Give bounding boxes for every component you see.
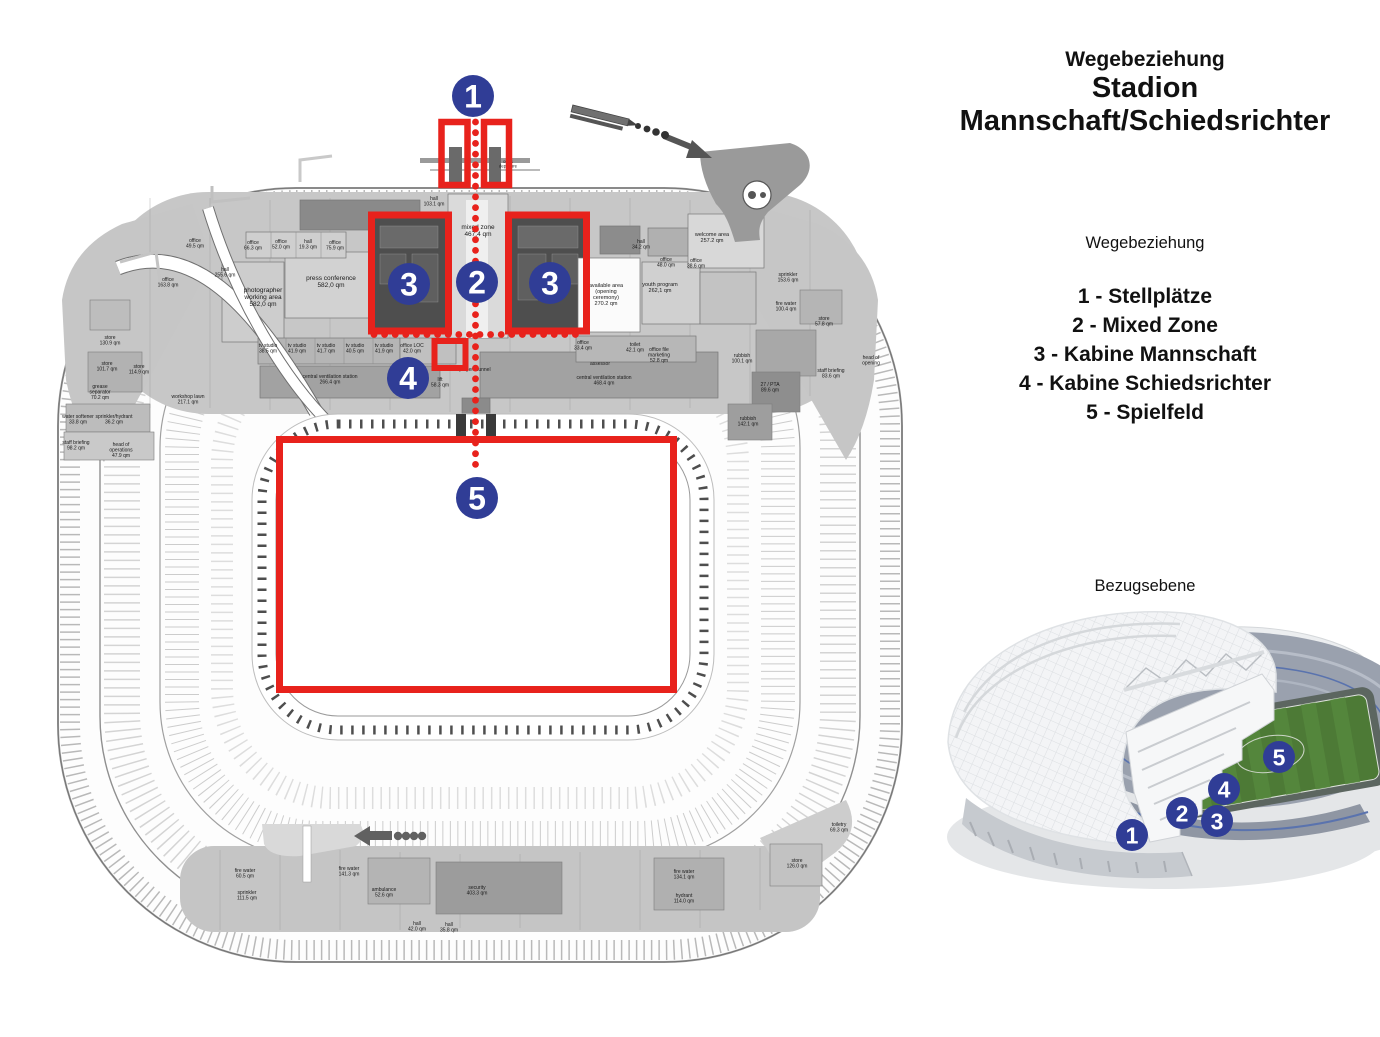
route-dot xyxy=(472,343,479,350)
stadium-3d-view: 12345 xyxy=(940,592,1380,922)
route-dot xyxy=(472,140,479,147)
route-dot xyxy=(477,331,484,338)
svg-text:4: 4 xyxy=(399,361,417,397)
route-dot xyxy=(572,331,579,338)
wayfinding-diagram: hall103.1 qmmixed zone467,4 qmphotograph… xyxy=(0,0,1380,1037)
marker-3: 3 xyxy=(529,262,571,304)
svg-text:5: 5 xyxy=(1273,744,1286,770)
svg-text:1: 1 xyxy=(1126,822,1139,848)
marker-5: 5 xyxy=(456,477,498,519)
room-label: office LOC42.0 qm xyxy=(400,343,424,354)
marker-2: 2 xyxy=(456,261,498,303)
route-dot xyxy=(413,331,420,338)
room-label: sprinkler153.6 qm xyxy=(778,272,799,283)
svg-text:2: 2 xyxy=(1176,800,1189,826)
title-line-1: Wegebeziehung xyxy=(930,48,1360,72)
route-dot xyxy=(472,119,479,126)
route-dot xyxy=(472,161,479,168)
legend-item: 4 - Kabine Schiedsrichter xyxy=(930,369,1360,398)
route-dot xyxy=(434,331,441,338)
route-dot xyxy=(472,386,479,393)
route-dot xyxy=(472,429,479,436)
room-label: rubbish100.1 qm xyxy=(732,353,753,364)
route-dot xyxy=(472,397,479,404)
route-dot xyxy=(371,331,378,338)
room-label: tv studio38.5 qm xyxy=(259,343,278,354)
svg-text:3: 3 xyxy=(1211,808,1224,834)
route-dot xyxy=(472,322,479,329)
route-dot xyxy=(445,331,452,338)
marker-2: 2 xyxy=(1166,797,1198,829)
room-label: fire water141.3 qm xyxy=(339,866,360,877)
route-dot xyxy=(551,331,558,338)
route-dot xyxy=(472,408,479,415)
legend-item: 1 - Stellplätze xyxy=(930,282,1360,311)
route-dot xyxy=(392,331,399,338)
room-label: fire water60.5 qm xyxy=(235,868,256,879)
room-label: rubbish142.1 qm xyxy=(738,416,759,427)
room-label: ambulance52.6 qm xyxy=(372,887,397,898)
route-dot xyxy=(381,331,388,338)
route-dot xyxy=(455,331,462,338)
route-dot xyxy=(472,365,479,372)
page-title: Wegebeziehung Stadion Mannschaft/Schieds… xyxy=(930,48,1360,139)
room-label: security403.3 qm xyxy=(467,885,488,896)
marker-4: 4 xyxy=(1208,773,1240,805)
route-dot xyxy=(472,194,479,201)
svg-text:3: 3 xyxy=(400,267,418,303)
marker-5: 5 xyxy=(1263,741,1295,773)
floor-plan: hall103.1 qmmixed zone467,4 qmphotograph… xyxy=(0,0,940,1037)
svg-text:2: 2 xyxy=(468,265,486,301)
route-dot xyxy=(540,331,547,338)
route-dot xyxy=(472,129,479,136)
route-dot xyxy=(472,354,479,361)
route-dot xyxy=(472,375,479,382)
room-label: hydrant114.0 qm xyxy=(674,893,694,904)
route-dot xyxy=(472,236,479,243)
room-label: tv studio41.9 qm xyxy=(288,343,307,354)
room-label: 27 / PTA89.6 qm xyxy=(760,382,780,393)
route-dot xyxy=(472,440,479,447)
route-dot xyxy=(508,331,515,338)
room-label: tv studio40.5 qm xyxy=(346,343,365,354)
route-dot xyxy=(424,331,431,338)
room-label: toiletry69.3 qm xyxy=(830,822,848,833)
route-dot xyxy=(472,204,479,211)
room-label: tv studio41.7 qm xyxy=(317,343,336,354)
legend-item: 5 - Spielfeld xyxy=(930,398,1360,427)
route-dot xyxy=(472,418,479,425)
route-dot xyxy=(561,331,568,338)
room-label: assessor xyxy=(590,361,610,367)
route-dot xyxy=(472,461,479,468)
room-label: fire water134.1 qm xyxy=(674,869,695,880)
route-dot xyxy=(487,331,494,338)
marker-3: 3 xyxy=(1201,805,1233,837)
legend-item: 2 - Mixed Zone xyxy=(930,311,1360,340)
route-dot xyxy=(472,226,479,233)
room-label: tv studio41.9 qm xyxy=(375,343,394,354)
legend-heading: Wegebeziehung xyxy=(930,234,1360,253)
marker-4: 4 xyxy=(387,357,429,399)
route-dot xyxy=(466,331,473,338)
marker-1: 1 xyxy=(452,75,494,117)
plan-bus-stalls xyxy=(420,147,540,183)
legend-list: 1 - Stellplätze2 - Mixed Zone3 - Kabine … xyxy=(930,282,1360,427)
route-dot xyxy=(519,331,526,338)
title-line-2: Stadion xyxy=(930,72,1360,105)
pitch-outline xyxy=(280,440,674,690)
route-dot xyxy=(472,172,479,179)
bus-icon xyxy=(570,105,639,134)
marker-3: 3 xyxy=(388,263,430,305)
marker-1: 1 xyxy=(1116,819,1148,851)
route-dot xyxy=(402,331,409,338)
route-dot xyxy=(530,331,537,338)
svg-text:4: 4 xyxy=(1218,776,1231,802)
svg-text:1: 1 xyxy=(464,79,482,115)
title-line-3: Mannschaft/Schiedsrichter xyxy=(930,105,1360,138)
route-dot xyxy=(472,311,479,318)
room-label: fire water100.4 qm xyxy=(776,301,797,312)
room-label: office filemarketing52.8 qm xyxy=(648,347,670,364)
route-dot xyxy=(472,247,479,254)
route-dot xyxy=(472,151,479,158)
legend-item: 3 - Kabine Mannschaft xyxy=(930,340,1360,369)
room-label: sprinkler111.5 qm xyxy=(237,890,257,901)
room-label: head ofopening xyxy=(862,355,880,366)
route-dot xyxy=(472,215,479,222)
route-dot xyxy=(498,331,505,338)
svg-text:5: 5 xyxy=(468,481,486,517)
route-dot xyxy=(472,183,479,190)
svg-text:3: 3 xyxy=(541,266,559,302)
route-dot xyxy=(472,450,479,457)
